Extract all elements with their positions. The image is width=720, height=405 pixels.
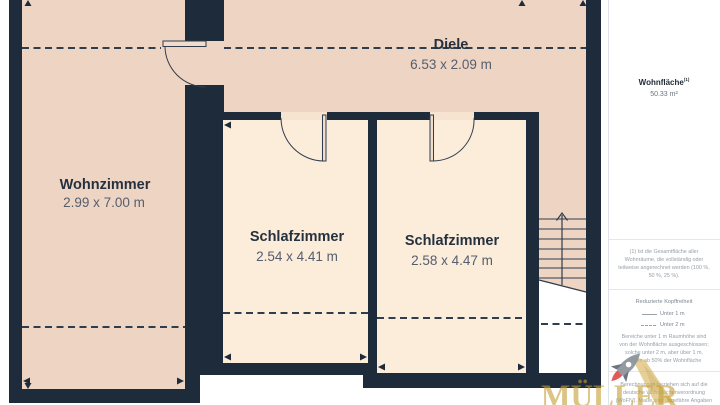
svg-text:6.53 x 2.09 m: 6.53 x 2.09 m	[410, 57, 492, 72]
svg-text:2.54 x 4.41 m: 2.54 x 4.41 m	[256, 249, 338, 264]
svg-text:Wohnzimmer: Wohnzimmer	[60, 177, 151, 193]
svg-text:2.58 x 4.47 m: 2.58 x 4.47 m	[411, 253, 493, 268]
svg-text:MÜLLER: MÜLLER	[541, 378, 679, 405]
svg-text:Schlafzimmer: Schlafzimmer	[250, 229, 345, 245]
svg-text:2.99 x 7.00 m: 2.99 x 7.00 m	[63, 195, 145, 210]
svg-text:Schlafzimmer: Schlafzimmer	[405, 233, 500, 249]
svg-text:Diele: Diele	[434, 37, 469, 53]
